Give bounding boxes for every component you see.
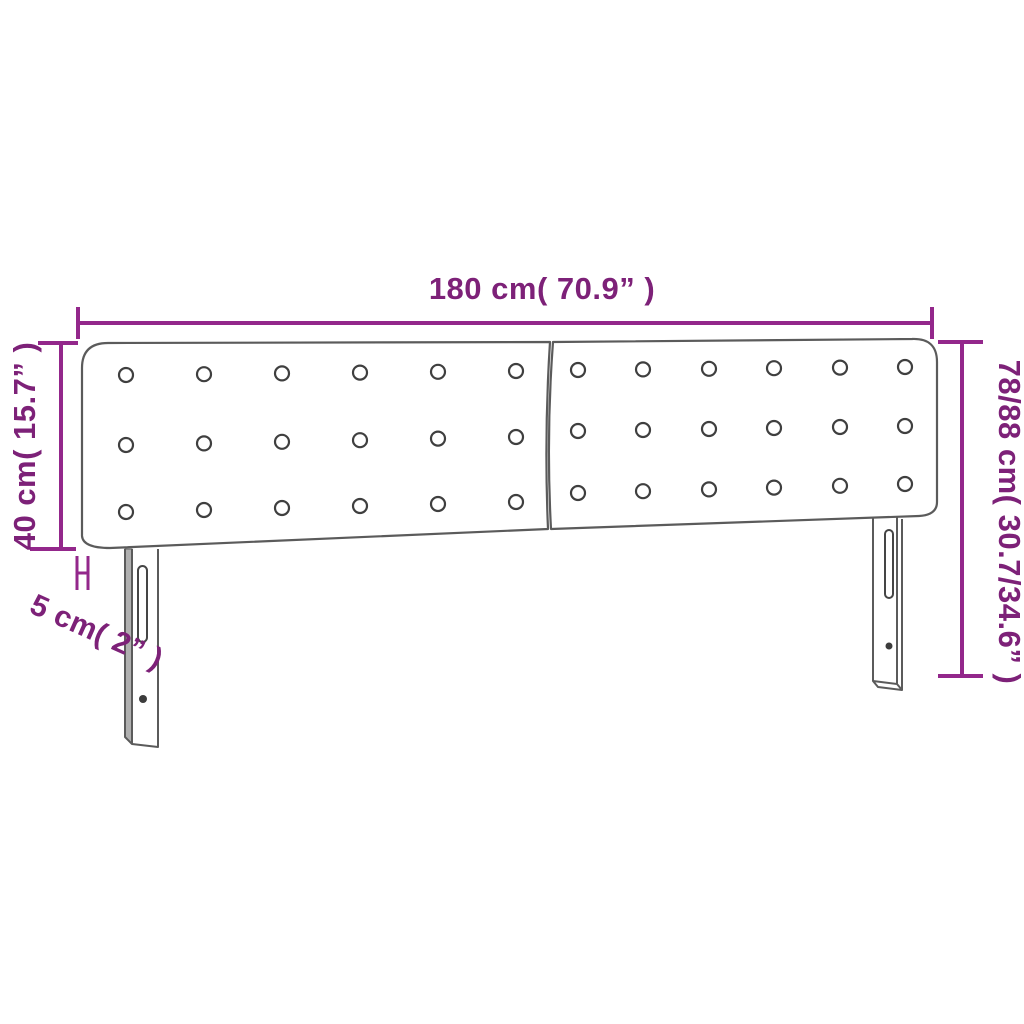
total-height-dimension: 78/88 cm( 30.7/34.6” ) (938, 342, 1024, 684)
tufting-button (119, 368, 133, 382)
tufting-button (509, 364, 523, 378)
tufting-button (636, 484, 650, 498)
tufting-button (833, 361, 847, 375)
tufting-button (353, 499, 367, 513)
tufting-button (509, 430, 523, 444)
tufting-button (767, 361, 781, 375)
panel-height-dimension: 40 cm( 15.7” ) (7, 342, 78, 551)
tufting-button (431, 432, 445, 446)
tufting-button (833, 420, 847, 434)
tufting-button (275, 366, 289, 380)
width-dimension-label: 180 cm( 70.9” ) (429, 271, 655, 306)
tufting-button (636, 423, 650, 437)
total-height-dimension-label: 78/88 cm( 30.7/34.6” ) (992, 360, 1024, 685)
headboard-right-panel (549, 339, 937, 529)
tufting-button (197, 503, 211, 517)
left-leg-slot (138, 566, 147, 642)
tufting-button (509, 495, 523, 509)
right-leg-screw (886, 643, 893, 650)
headboard-left-panel (82, 342, 550, 548)
tufting-button (431, 365, 445, 379)
width-dimension: 180 cm( 70.9” ) (78, 271, 932, 339)
tufting-button (571, 363, 585, 377)
tufting-button (275, 435, 289, 449)
tufting-button (431, 497, 445, 511)
left-leg-screw (139, 695, 147, 703)
tufting-button (702, 422, 716, 436)
tufting-button (571, 486, 585, 500)
product-dimension-diagram: 180 cm( 70.9” ) 40 cm( 15.7” ) 78/88 cm(… (0, 0, 1024, 1024)
right-leg (873, 517, 902, 690)
tufting-button (275, 501, 289, 515)
tufting-button (197, 436, 211, 450)
panel-height-dimension-label: 40 cm( 15.7” ) (7, 342, 42, 551)
tufting-button (702, 482, 716, 496)
tufting-button (119, 438, 133, 452)
tufting-button (353, 433, 367, 447)
tufting-button (197, 367, 211, 381)
tufting-button (898, 360, 912, 374)
tufting-button (636, 362, 650, 376)
tufting-button (353, 366, 367, 380)
tufting-button (898, 477, 912, 491)
tufting-button (571, 424, 585, 438)
tufting-button (767, 421, 781, 435)
tufting-button (898, 419, 912, 433)
tufting-button (119, 505, 133, 519)
tufting-button (702, 362, 716, 376)
tufting-button (767, 481, 781, 495)
tufting-button (833, 479, 847, 493)
diagram-canvas: 180 cm( 70.9” ) 40 cm( 15.7” ) 78/88 cm(… (0, 0, 1024, 1024)
right-leg-slot (885, 530, 893, 598)
